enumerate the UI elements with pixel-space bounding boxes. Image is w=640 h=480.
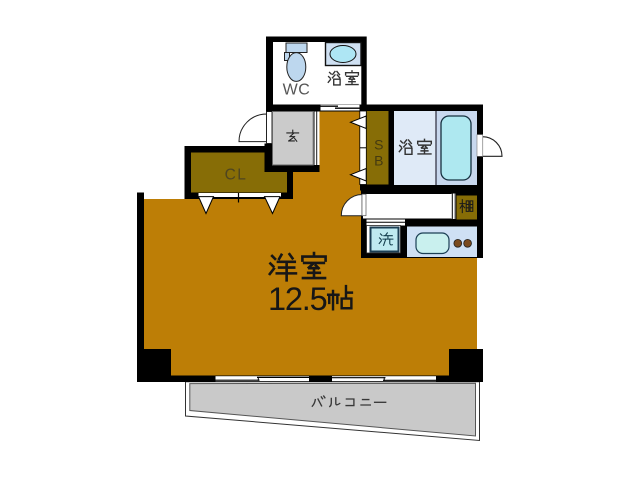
svg-text:B: B [374, 153, 383, 169]
svg-text:CL: CL [225, 167, 248, 184]
svg-text:WC: WC [283, 81, 311, 98]
svg-text:S: S [374, 136, 383, 152]
svg-text:12.5: 12.5 [268, 281, 327, 317]
